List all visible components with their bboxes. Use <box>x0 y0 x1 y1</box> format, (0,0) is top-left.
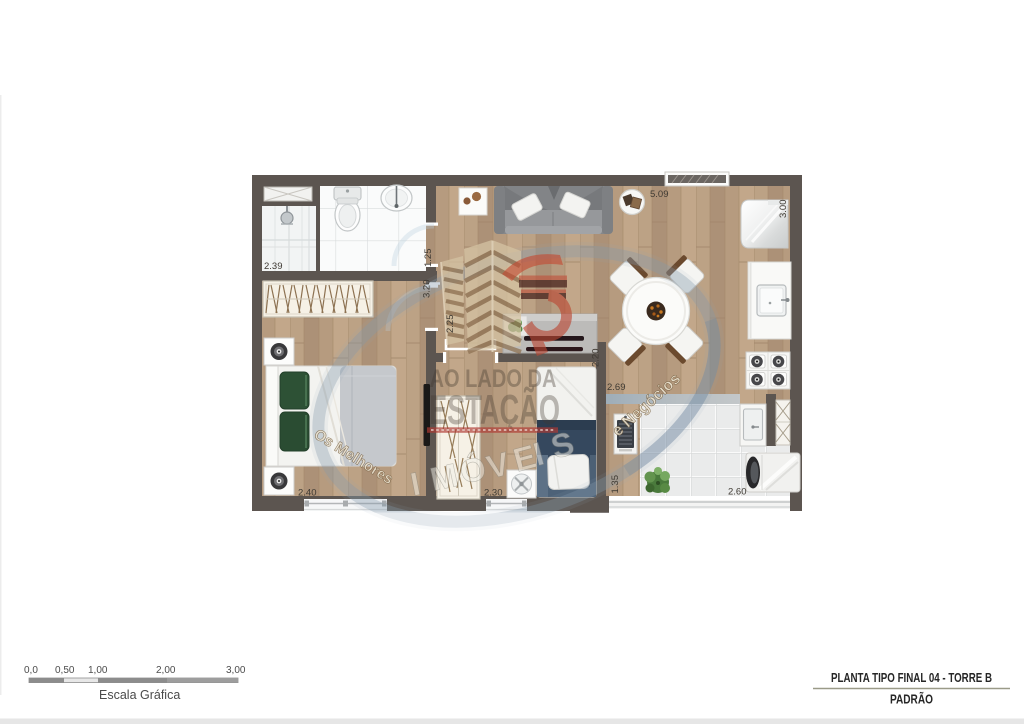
svg-text:2.20: 2.20 <box>591 349 602 368</box>
svg-text:0,50: 0,50 <box>55 665 75 676</box>
svg-text:3.20: 3.20 <box>422 280 433 299</box>
svg-text:PADRÃO: PADRÃO <box>890 692 933 707</box>
svg-text:2.60: 2.60 <box>728 487 747 498</box>
svg-text:2.69: 2.69 <box>607 382 626 393</box>
svg-text:2.39: 2.39 <box>264 261 283 272</box>
svg-text:2.25: 2.25 <box>445 315 456 334</box>
svg-text:5.09: 5.09 <box>650 189 669 200</box>
svg-text:2.40: 2.40 <box>298 488 317 499</box>
svg-text:ESTAÇÃO: ESTAÇÃO <box>429 386 560 433</box>
svg-text:2,00: 2,00 <box>156 665 176 676</box>
svg-text:Escala Gráfica: Escala Gráfica <box>99 688 180 702</box>
svg-text:1.35: 1.35 <box>610 475 621 494</box>
svg-text:0,0: 0,0 <box>24 665 38 676</box>
svg-text:3.00: 3.00 <box>778 200 789 219</box>
svg-text:2.30: 2.30 <box>484 488 503 499</box>
svg-text:1.25: 1.25 <box>423 249 434 268</box>
svg-text:3,00: 3,00 <box>226 665 246 676</box>
svg-text:1,00: 1,00 <box>88 665 108 676</box>
svg-text:PLANTA TIPO FINAL 04 - TORRE B: PLANTA TIPO FINAL 04 - TORRE B <box>831 671 992 685</box>
